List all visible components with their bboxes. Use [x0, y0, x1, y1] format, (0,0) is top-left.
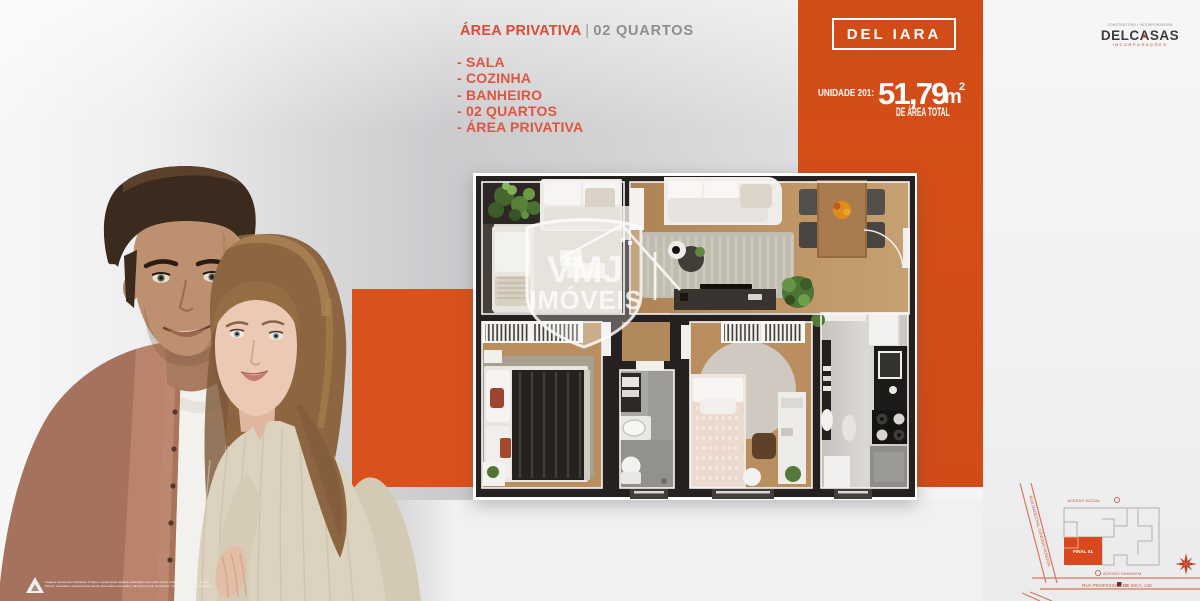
svg-text:ACESSO SOCIAL: ACESSO SOCIAL	[1068, 498, 1101, 503]
svg-text:ACESSO GARAGEM: ACESSO GARAGEM	[1103, 571, 1141, 576]
svg-text:FINAL 01: FINAL 01	[1073, 549, 1093, 554]
svg-text:VMJ: VMJ	[547, 249, 623, 290]
svg-text:IMÓVEIS: IMÓVEIS	[529, 285, 642, 315]
svg-text:RUA MARECHAL CÂNDIDO RONDON: RUA MARECHAL CÂNDIDO RONDON	[1028, 495, 1052, 567]
svg-text:DE SICA, 140: DE SICA, 140	[1123, 583, 1152, 588]
